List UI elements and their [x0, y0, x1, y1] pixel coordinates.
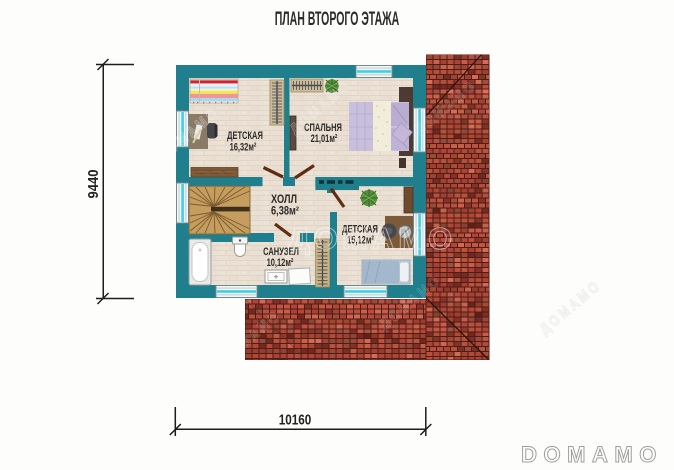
- svg-text:21,01м²: 21,01м²: [311, 133, 338, 146]
- svg-text:10160: 10160: [279, 411, 312, 428]
- svg-text:6,38м²: 6,38м²: [271, 205, 299, 218]
- svg-text:ДОМАМО: ДОМАМО: [288, 221, 456, 256]
- svg-text:ПЛАН ВТОРОГО ЭТАЖА: ПЛАН ВТОРОГО ЭТАЖА: [275, 9, 400, 30]
- svg-text:16,32м²: 16,32м²: [230, 141, 257, 154]
- svg-text:DOMAMO: DOMAMO: [521, 442, 663, 467]
- svg-text:9440: 9440: [85, 169, 101, 198]
- svg-text:10,12м²: 10,12м²: [267, 257, 294, 270]
